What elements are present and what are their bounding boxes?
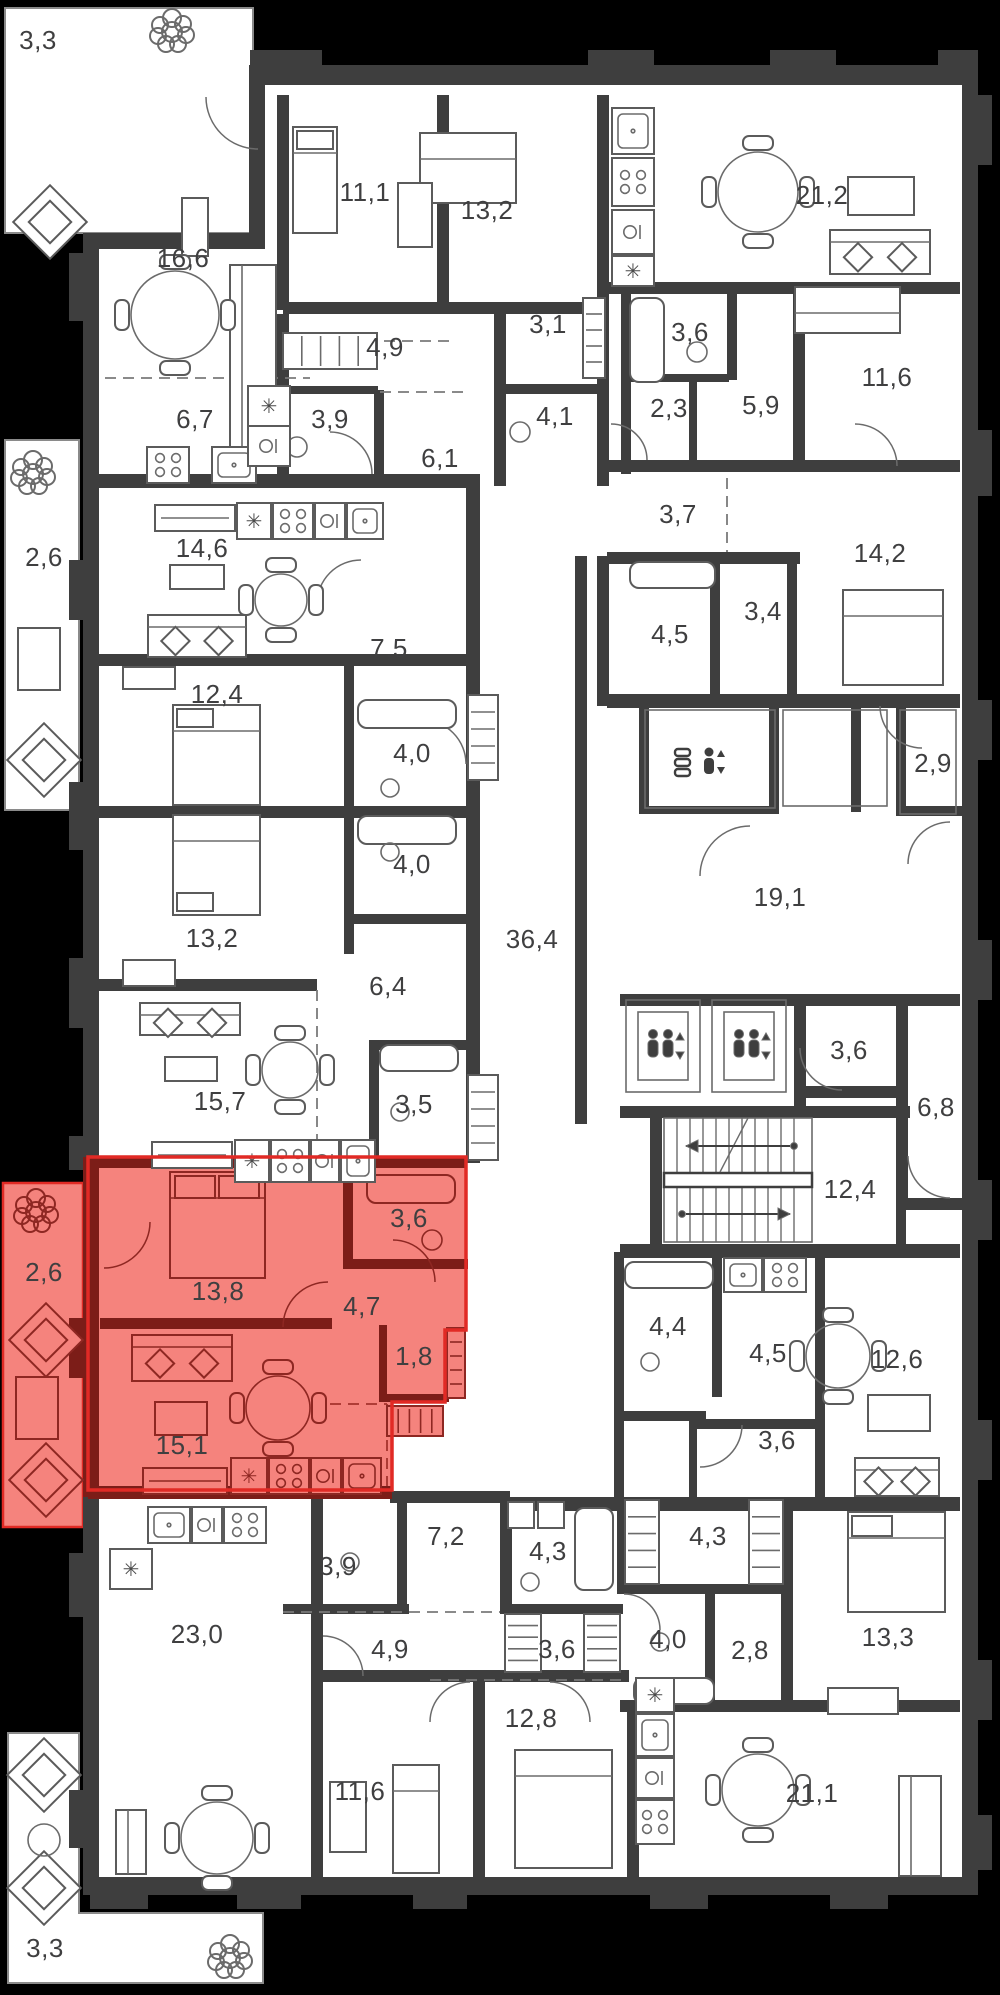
room-area-label-room-2-3: 2,3	[650, 393, 688, 423]
room-area-label-bath-4-1: 4,1	[536, 401, 574, 431]
room-area-label-kitchen-6-7: 6,7	[176, 404, 214, 434]
room-area-label-hall-6-4: 6,4	[369, 971, 407, 1001]
room-area-label-kitchen-4-5: 4,5	[749, 1338, 787, 1368]
room-area-label-room-6-8: 6,8	[917, 1092, 955, 1122]
room-area-label-living-21-2: 21,2	[796, 180, 849, 210]
room-area-label-wardrobe-3-4: 3,4	[744, 596, 782, 626]
room-area-label-bath-3-6-red: 3,6	[390, 1203, 428, 1233]
room-area-label-living-15-7: 15,7	[194, 1086, 247, 1116]
room-area-label-hall-2-8: 2,8	[731, 1635, 769, 1665]
room-area-label-stairs-12-4: 12,4	[824, 1174, 877, 1204]
svg-text:✳: ✳	[246, 509, 263, 533]
room-area-label-balcony-2-6-red: 2,6	[25, 1257, 63, 1287]
room-area-label-bedroom-12-8: 12,8	[505, 1703, 558, 1733]
room-area-label-room-3-1: 3,1	[529, 309, 567, 339]
room-area-label-living-15-1-red: 15,1	[156, 1430, 209, 1460]
room-area-label-bedroom-11-1: 11,1	[340, 177, 391, 207]
room-area-label-bath-4-5-mid: 4,5	[651, 619, 689, 649]
room-area-label-bath-4-0-lower: 4,0	[393, 849, 431, 879]
svg-text:✳: ✳	[625, 259, 642, 283]
room-area-label-hall-4-9-top: 4,9	[366, 332, 404, 362]
room-area-label-bath-4-3-left: 4,3	[529, 1536, 567, 1566]
room-area-label-bedroom-14-2: 14,2	[854, 538, 907, 568]
room-area-label-terrace-top: 3,3	[19, 25, 57, 55]
svg-text:✳: ✳	[244, 1149, 261, 1173]
room-area-label-wardrobe-4-3-right: 4,3	[689, 1521, 727, 1551]
room-area-label-bath-4-4: 4,4	[649, 1311, 687, 1341]
room-area-label-hall-3-6-br: 3,6	[758, 1425, 796, 1455]
svg-text:✳: ✳	[261, 394, 278, 418]
svg-text:✳: ✳	[647, 1683, 664, 1707]
room-area-label-bedroom-12-4: 12,4	[191, 679, 244, 709]
room-area-label-bath-3-9-top: 3,9	[311, 404, 349, 434]
room-area-label-bedroom-13-2-left: 13,2	[186, 923, 239, 953]
room-area-label-bath-3-5: 3,5	[395, 1089, 433, 1119]
room-area-label-hall-6-1: 6,1	[421, 443, 459, 473]
room-area-label-hall-5-9: 5,9	[742, 390, 780, 420]
room-area-label-living-16-6: 16,6	[157, 243, 210, 273]
room-area-label-living-23-0: 23,0	[171, 1619, 224, 1649]
room-area-label-wardrobe-1-8-red: 1,8	[395, 1341, 433, 1371]
room-area-label-bath-3-6-top: 3,6	[671, 317, 709, 347]
room-area-label-balcony-2-6-left: 2,6	[25, 542, 63, 572]
svg-text:✳: ✳	[123, 1557, 140, 1581]
room-area-label-bedroom-13-2-top: 13,2	[461, 195, 514, 225]
room-area-label-hall-7-2: 7,2	[427, 1521, 465, 1551]
floor-plan-svg: ✳✳✳✳✳✳✳ 3,316,611,113,221,24,93,13,611,6…	[0, 0, 1000, 1995]
room-area-label-bedroom-13-3: 13,3	[862, 1622, 915, 1652]
room-area-label-bedroom-11-6-top: 11,6	[862, 362, 913, 392]
room-area-label-bath-4-0-bottom: 4,0	[649, 1624, 687, 1654]
stairs-icon	[664, 1118, 812, 1242]
room-area-label-room-3-6-lobby: 3,6	[830, 1035, 868, 1065]
room-area-label-bedroom-13-8-red: 13,8	[192, 1276, 245, 1306]
room-area-label-bath-3-9-bottom: 3,9	[319, 1551, 357, 1581]
room-area-label-hall-7-5: 7,5	[370, 633, 408, 663]
room-area-label-hall-4-7-red: 4,7	[343, 1291, 381, 1321]
room-area-label-living-19-1: 19,1	[754, 882, 807, 912]
room-area-label-bedroom-11-6-bottom: 11,6	[335, 1776, 386, 1806]
room-area-label-living-14-6: 14,6	[176, 533, 229, 563]
room-area-label-corridor-36-4: 36,4	[506, 924, 559, 954]
room-area-label-hall-4-9-bottom: 4,9	[371, 1634, 409, 1664]
room-area-label-room-2-9: 2,9	[914, 748, 952, 778]
room-area-label-room-3-7: 3,7	[659, 499, 697, 529]
room-area-label-living-21-1: 21,1	[786, 1778, 839, 1808]
room-area-label-wardrobe-3-6-bottom: 3,6	[538, 1634, 576, 1664]
floor-plan-page: ✳✳✳✳✳✳✳ 3,316,611,113,221,24,93,13,611,6…	[0, 0, 1000, 1995]
room-area-label-bath-4-0-upper: 4,0	[393, 738, 431, 768]
room-area-label-balcony-3-3-bottom: 3,3	[26, 1933, 64, 1963]
svg-text:✳: ✳	[241, 1464, 258, 1488]
room-area-label-living-12-6: 12,6	[871, 1344, 924, 1374]
